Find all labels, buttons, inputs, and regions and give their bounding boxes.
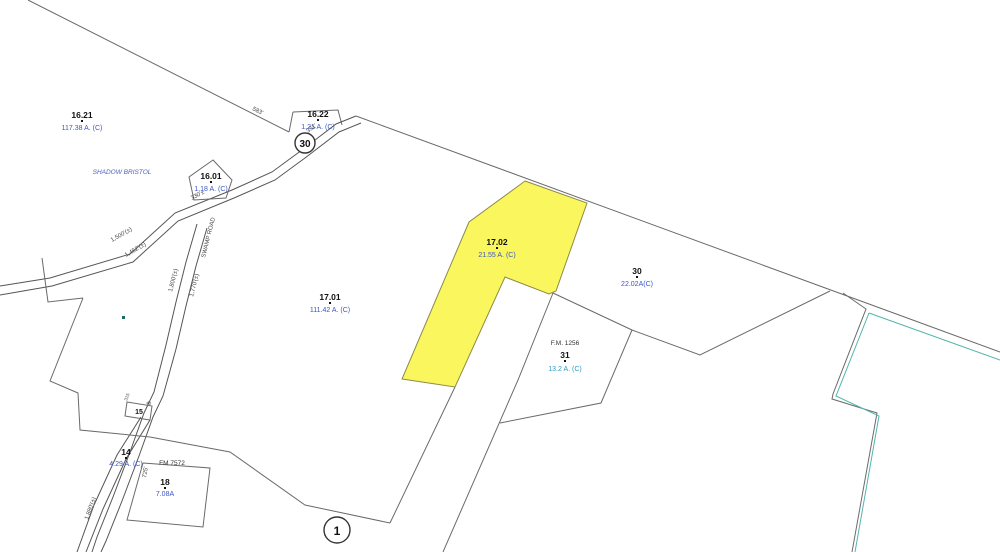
dim-1800: 1,800'(±): [168, 268, 179, 292]
fm-7572-label: FM 7572: [159, 460, 185, 467]
boundary-west: [42, 258, 150, 437]
road-fork-left-edge: [77, 417, 141, 552]
parcel-acreage: 22.02A(C): [621, 281, 653, 288]
parcel-map-canvas: 16.21 117.38 A. (C) 16.22 1.21 A. (C) 16…: [0, 0, 1000, 552]
parcel-number: 17.01: [319, 292, 341, 302]
dim-1500: 1,500'(±): [110, 227, 133, 244]
parcel-acreage: 7.08A: [156, 491, 175, 498]
parcel-centroid-dot: [317, 119, 319, 121]
parcel-label-16-22[interactable]: 16.22 1.21 A. (C): [301, 109, 334, 131]
road-fork-right-edge: [86, 420, 150, 552]
parcel-number: 18: [160, 477, 170, 487]
parcel-acreage: 21.55 A. (C): [478, 252, 515, 259]
parcel-label-16-21[interactable]: 16.21 117.38 A. (C): [62, 110, 103, 132]
parcel-acreage: 111.42 A. (C): [310, 307, 350, 314]
parcel-centroid-dot: [210, 181, 212, 183]
subdivision-label: SHADOW BRISTOL: [93, 169, 152, 176]
parcel-number: 15: [135, 409, 143, 416]
dim-1770: 1,770'(±): [189, 273, 200, 297]
sheet-index-marker[interactable]: 1: [324, 517, 350, 543]
boundary-northwest: [28, 0, 289, 132]
parcel-label-17-01[interactable]: 17.01 111.42 A. (C): [310, 292, 350, 314]
parcel-centroid-dot: [496, 247, 498, 249]
survey-line-teal: [836, 313, 1000, 552]
parcel-centroid-dot: [564, 360, 566, 362]
parcel-centroid-dot: [164, 487, 166, 489]
parcel-number: 30: [632, 266, 642, 276]
survey-point-marker: [122, 316, 125, 319]
parcel-acreage: 4.29 A. (C): [109, 461, 142, 468]
corridor-west-edge: [390, 387, 455, 523]
swamp-road-left-edge: [92, 224, 197, 552]
parcel-number: 14: [121, 447, 131, 457]
dim-315: 315: [123, 392, 130, 401]
boundary-east-zigzag: [832, 293, 877, 552]
parcel-centroid-dot: [125, 457, 127, 459]
parcel-label-16-01[interactable]: 16.01 1.18 A. (C): [194, 171, 227, 193]
parcel-number: 17.02: [486, 237, 508, 247]
boundary-south: [150, 437, 390, 523]
parcel-number: 16.22: [307, 109, 329, 119]
highway-30-shield: 30: [295, 133, 315, 153]
parcel-label-14[interactable]: 14 4.29 A. (C): [109, 447, 142, 468]
parcel-centroid-dot: [81, 120, 83, 122]
dim-725: 725': [142, 466, 150, 478]
dim-1452: 1,452'(±): [124, 242, 147, 259]
parcel-label-18[interactable]: 18 7.08A: [156, 477, 175, 498]
parcel-label-15[interactable]: 15: [135, 409, 143, 416]
sheet-number: 1: [334, 524, 341, 538]
dim-583: 583': [251, 106, 264, 116]
parcel-acreage: 117.38 A. (C): [62, 125, 103, 132]
parcel-number: 31: [560, 350, 570, 360]
dim-1880: 1,880'(±): [84, 497, 98, 521]
swamp-road-label: SWAMP ROAD: [201, 216, 217, 258]
parcel-centroid-dot: [329, 302, 331, 304]
parcel-acreage: 13.2 A. (C): [548, 366, 581, 373]
parcel-number: 16.01: [200, 171, 222, 181]
parcel-map-viewport: 16.21 117.38 A. (C) 16.22 1.21 A. (C) 16…: [0, 0, 1000, 552]
shield-number: 30: [299, 139, 311, 150]
parcel-centroid-dot: [636, 276, 638, 278]
fm-1256-label: F.M. 1256: [551, 340, 580, 347]
parcel-number: 16.21: [71, 110, 93, 120]
